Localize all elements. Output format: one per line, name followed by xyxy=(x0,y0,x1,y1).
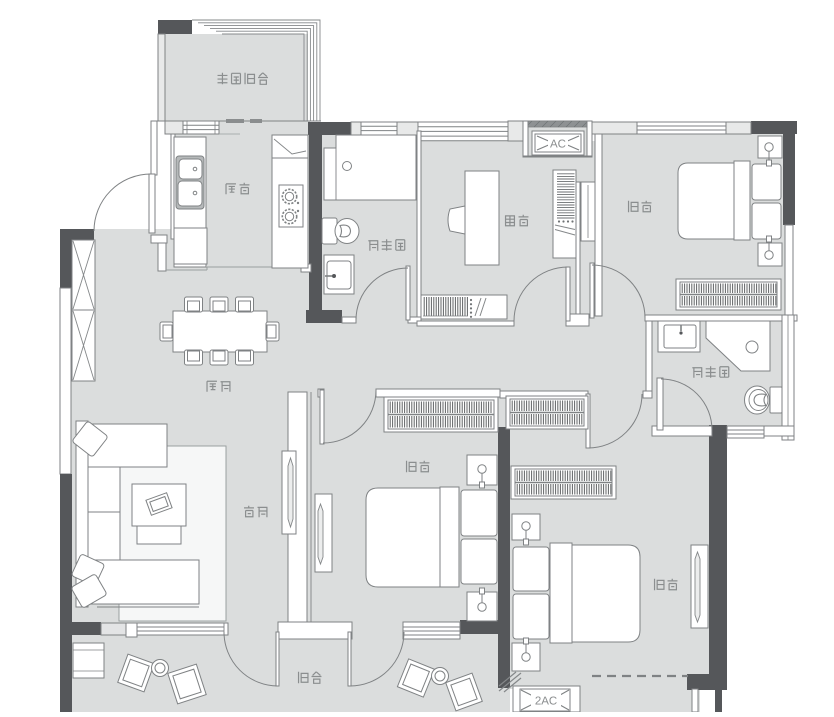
svg-text:2AC: 2AC xyxy=(535,696,557,708)
svg-text:AC: AC xyxy=(550,139,566,151)
